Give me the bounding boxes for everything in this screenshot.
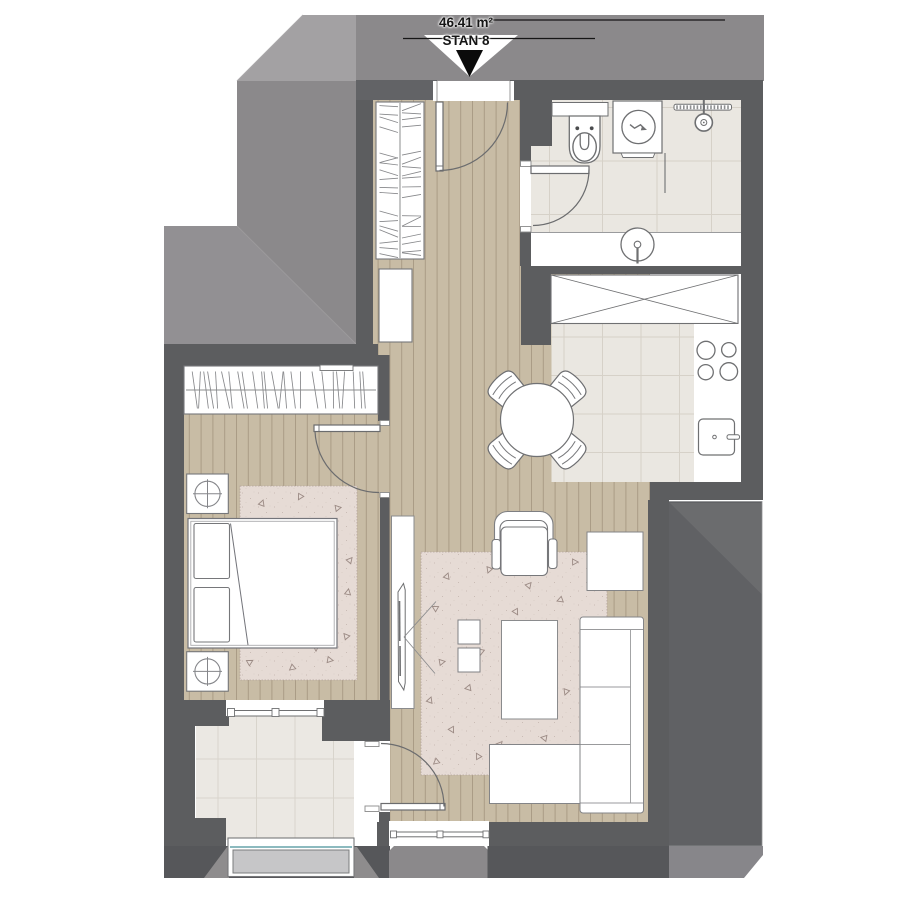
svg-text:STAN 8: STAN 8: [442, 33, 489, 48]
svg-text:46.41 m²: 46.41 m²: [439, 15, 494, 30]
